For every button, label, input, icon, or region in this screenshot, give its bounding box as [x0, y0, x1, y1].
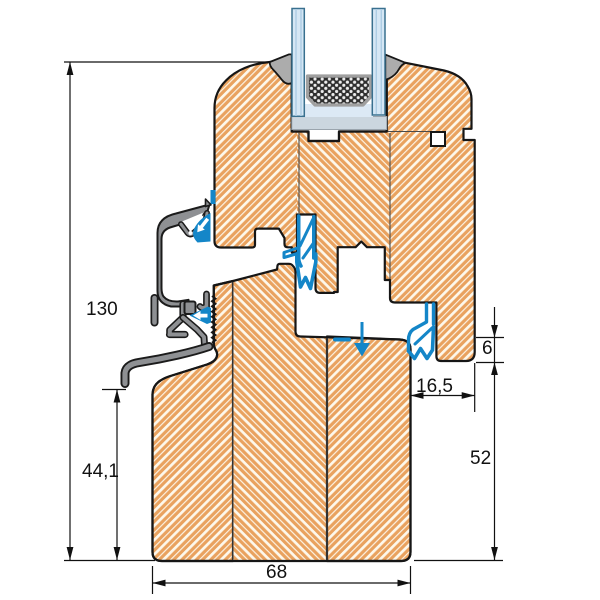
- svg-text:44,1: 44,1: [82, 461, 119, 482]
- svg-text:52: 52: [470, 448, 491, 469]
- svg-text:130: 130: [86, 299, 118, 320]
- svg-text:6: 6: [482, 338, 493, 359]
- svg-text:16,5: 16,5: [416, 376, 453, 397]
- svg-text:68: 68: [266, 562, 287, 583]
